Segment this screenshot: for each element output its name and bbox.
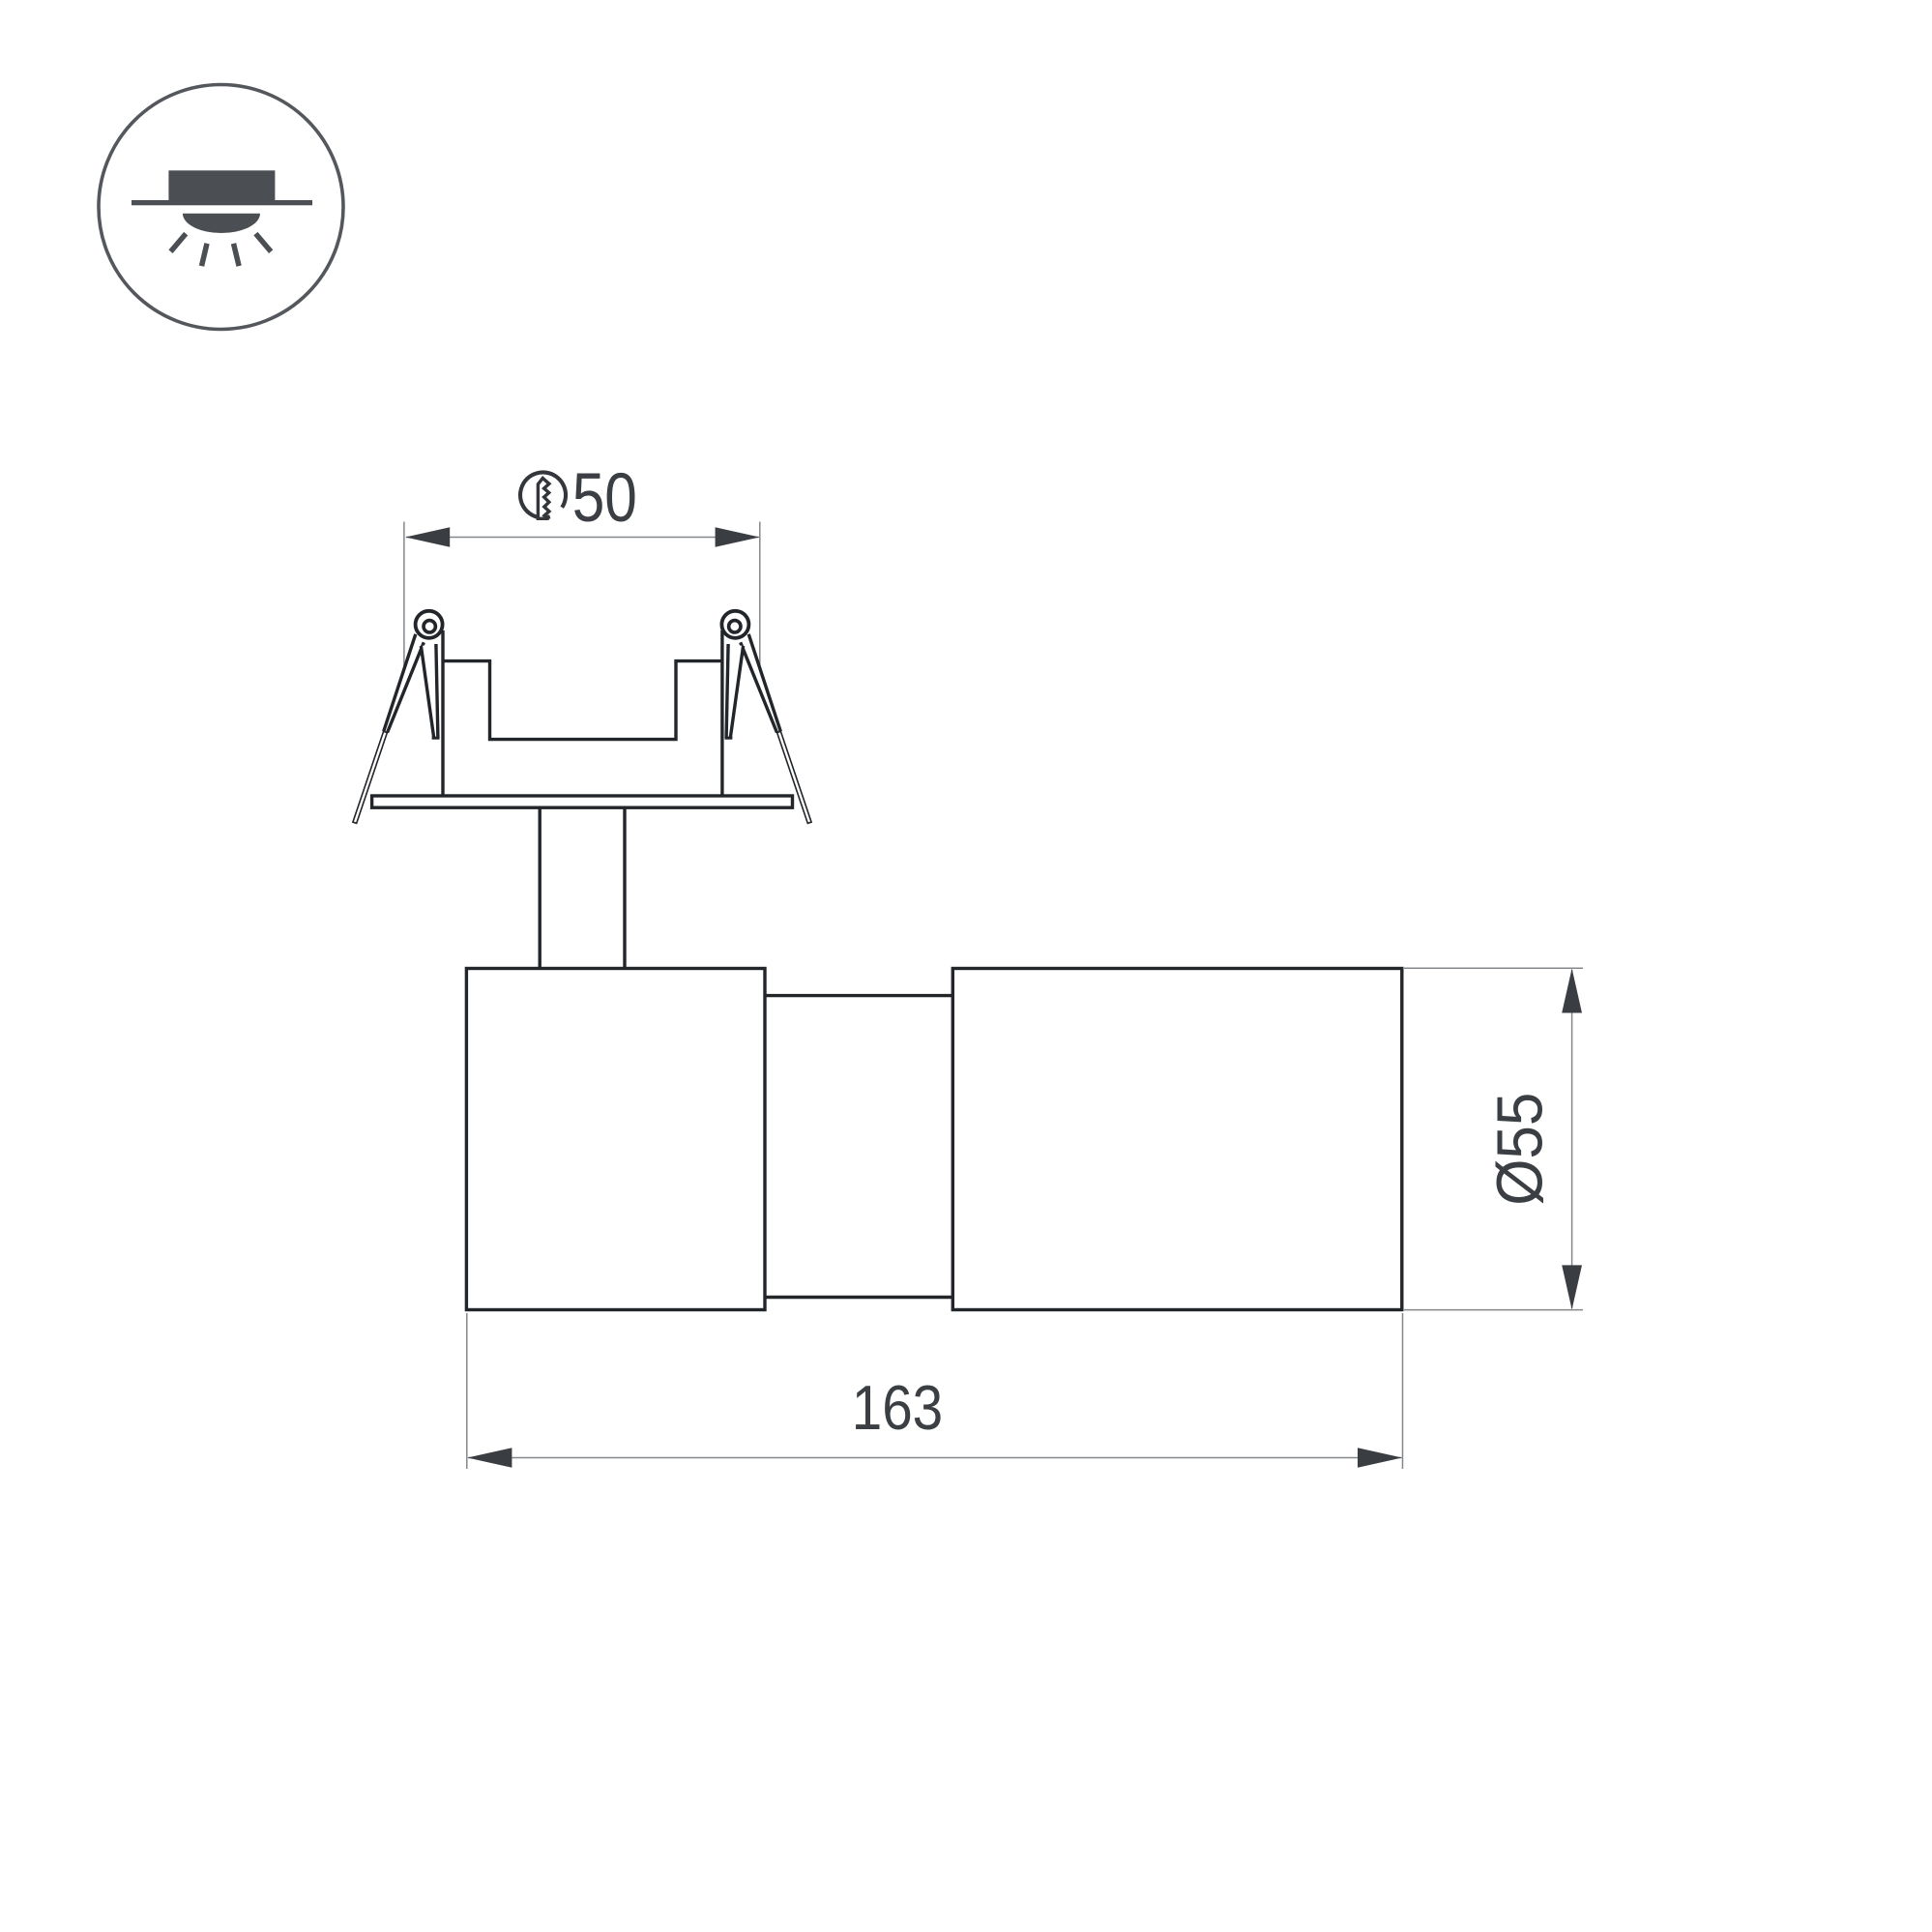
svg-text:163: 163 — [852, 1372, 943, 1443]
svg-text:50: 50 — [572, 459, 637, 537]
svg-text:Ø55: Ø55 — [1483, 1093, 1556, 1206]
